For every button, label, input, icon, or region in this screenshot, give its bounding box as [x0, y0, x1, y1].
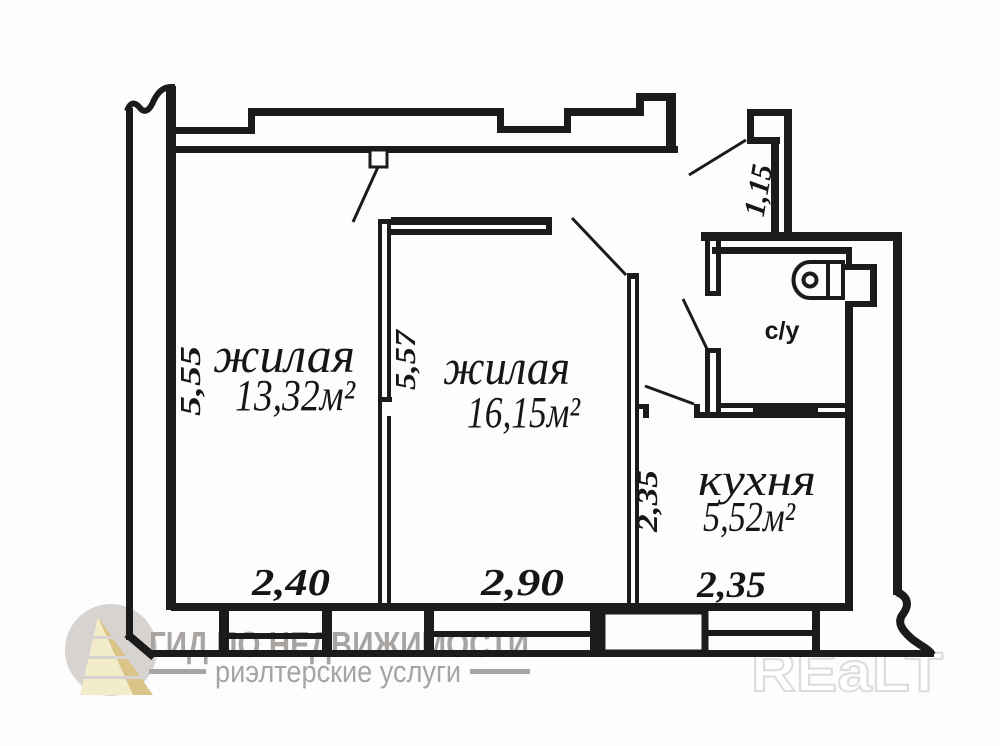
svg-text:2,40: 2,40 [251, 562, 330, 604]
svg-text:5,55: 5,55 [175, 346, 207, 416]
svg-text:5,52м²: 5,52м² [703, 495, 796, 541]
svg-text:5,57: 5,57 [390, 328, 422, 390]
svg-text:2,90: 2,90 [480, 562, 564, 604]
svg-text:REaLT: REaLT [751, 640, 943, 703]
svg-text:16,15м²: 16,15м² [467, 388, 581, 437]
svg-text:2,35: 2,35 [632, 470, 664, 533]
svg-text:риэлтерские услуги: риэлтерские услуги [215, 654, 461, 689]
svg-text:13,32м²: 13,32м² [235, 371, 356, 420]
svg-text:жилая: жилая [443, 339, 570, 395]
svg-text:с/у: с/у [765, 317, 800, 345]
svg-text:2,35: 2,35 [696, 565, 766, 606]
